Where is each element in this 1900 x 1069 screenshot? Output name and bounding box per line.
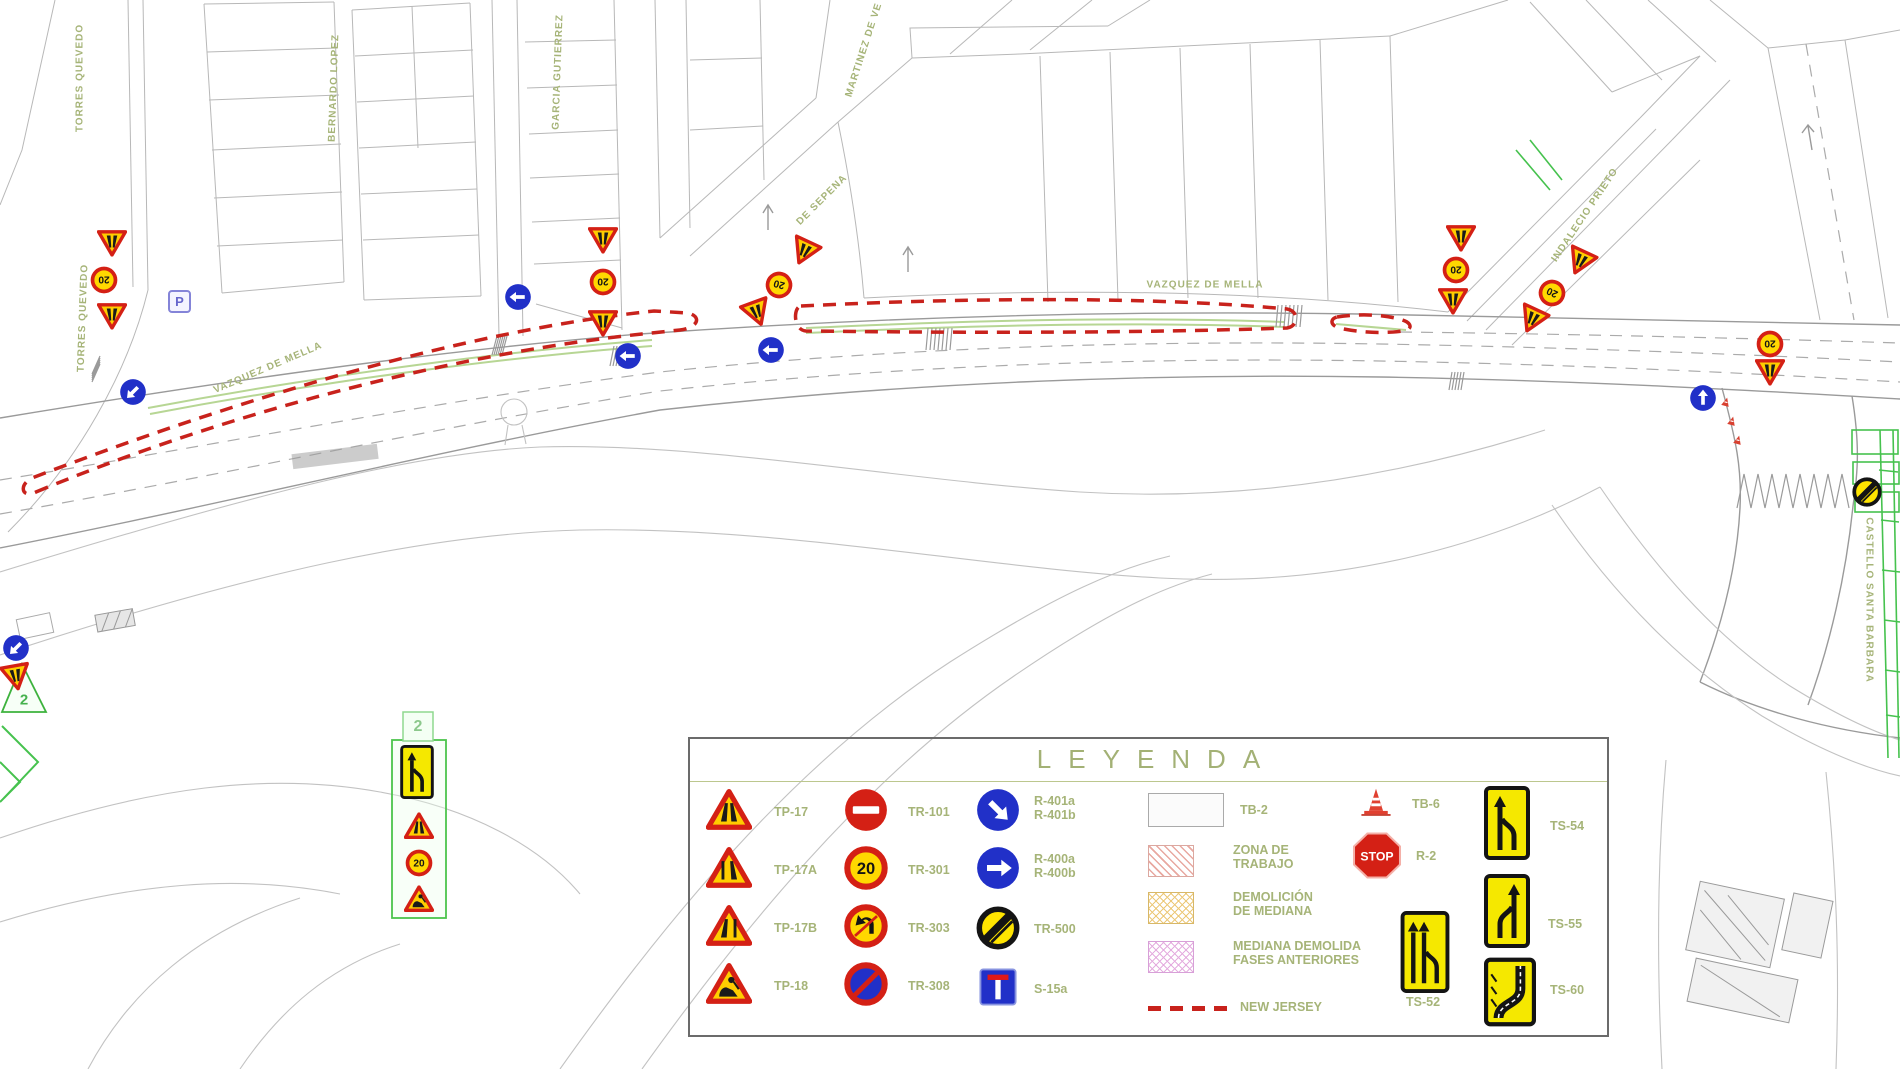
traffic-works-plan: P 2 2 LEYENDA TP-17 TP-17A TP-17B TP-18 … [0,0,1900,1069]
tr101-sign-icon [844,788,888,832]
legend-label: TS-52 [1406,995,1440,1009]
work-zone-swatch [1148,845,1194,877]
legend-label: S-15a [1034,982,1067,996]
parcel-lines [0,0,1900,532]
s20-map-sign: 20 [590,269,617,296]
svg-text:20: 20 [1450,263,1462,274]
crosswalks [92,305,1849,508]
svg-text:STOP: STOP [1360,850,1393,864]
tr301-sign-icon: 20 [844,846,888,890]
tr500-sign-icon [976,906,1020,950]
s20-map-sign: 20 [91,267,118,294]
demolished-median-swatch [1148,941,1194,973]
legend-separator [690,781,1607,782]
tp-map-sign [1755,359,1785,386]
tp-map-sign [0,661,33,693]
s20-map-sign: 20 [406,850,433,877]
legend-label: TB-6 [1412,797,1440,811]
tp18-map-sign [404,886,434,913]
tp17-sign-icon [706,789,752,831]
tp-map-sign [404,813,434,840]
tp17b-sign-icon [706,905,752,947]
legend-label: TP-18 [774,979,808,993]
median-demolition-swatch [1148,892,1194,924]
traffic-flow-arrows [763,125,1814,272]
legend-label: MEDIANA DEMOLIDA FASES ANTERIORES [1233,939,1361,967]
street-label: VAZQUEZ DE MELLA [1147,280,1264,291]
tp-map-sign [1438,288,1468,315]
r401-sign-icon [976,788,1020,832]
legend-label: TP-17 [774,805,808,819]
legend-label: R-401a R-401b [1034,794,1076,822]
legend-label: TR-303 [908,921,950,935]
legend-label: TR-301 [908,863,950,877]
legend-label: TS-55 [1548,917,1582,931]
tb2-swatch [1148,793,1224,827]
legend-label: NEW JERSEY [1240,1000,1322,1014]
svg-text:20: 20 [597,275,609,286]
phase-2-marker-label: 2 [20,692,28,709]
legend-label: TP-17B [774,921,817,935]
tp-map-sign [588,310,618,337]
phase-2-panel-label: 2 [414,718,423,736]
legend-label: R-400a R-400b [1034,852,1076,880]
svg-text:20: 20 [1764,337,1776,348]
tb6-cone-icon [1360,786,1392,817]
svg-text:20: 20 [413,859,425,870]
ts54-panel-icon [1484,785,1530,861]
street-label: CASTELLO SANTA BARBARA [1864,517,1875,682]
legend: LEYENDA TP-17 TP-17A TP-17B TP-18 TR-101… [688,737,1609,1037]
tr308-sign-icon [844,962,888,1006]
svg-text:20: 20 [98,273,110,284]
bluearrow-map-sign [505,284,532,311]
r400-sign-icon [976,846,1020,890]
legend-label: DEMOLICIÓN DE MEDIANA [1233,890,1313,918]
legend-label: TR-101 [908,805,950,819]
tp-map-sign [97,303,127,330]
tr303-sign-icon [844,904,888,948]
r2-stop-sign-icon: STOP [1352,832,1402,879]
street-label: TORRES QUEVEDO [75,24,86,132]
ts54-map-sign [395,745,439,799]
legend-label: R-2 [1416,849,1436,863]
legend-label: TS-54 [1550,819,1584,833]
legend-label: TR-500 [1034,922,1076,936]
ts52-panel-icon [1400,911,1450,993]
tp-map-sign [97,230,127,257]
tp-map-sign [588,227,618,254]
road-edges [0,313,1900,738]
s20-map-sign: 20 [1443,257,1470,284]
tp18-sign-icon [706,963,752,1005]
endlimit-map-sign [1852,477,1882,507]
lane-dashes [0,44,1900,514]
ts60-panel-icon [1484,957,1536,1027]
legend-label: ZONA DE TRABAJO [1233,843,1293,871]
legend-label: TR-308 [908,979,950,993]
bluearrow-map-sign [1690,385,1717,412]
legend-title: LEYENDA [690,744,1607,775]
s20-map-sign: 20 [1757,331,1784,358]
parking-icon: P [168,290,191,313]
bluearrow-map-sign [615,343,642,370]
green-structures [0,140,1900,802]
legend-label: TB-2 [1240,803,1268,817]
legend-label: TP-17A [774,863,817,877]
s15a-sign-icon [979,968,1017,1006]
bluearrow-map-sign [758,337,785,364]
svg-text:20: 20 [857,860,875,878]
tp17a-sign-icon [706,847,752,889]
legend-label: TS-60 [1550,983,1584,997]
phase-2-markers [2,664,446,918]
ts55-panel-icon [1484,873,1530,949]
new-jersey-line-swatch [1148,1006,1228,1011]
tp-map-sign [1446,225,1476,252]
